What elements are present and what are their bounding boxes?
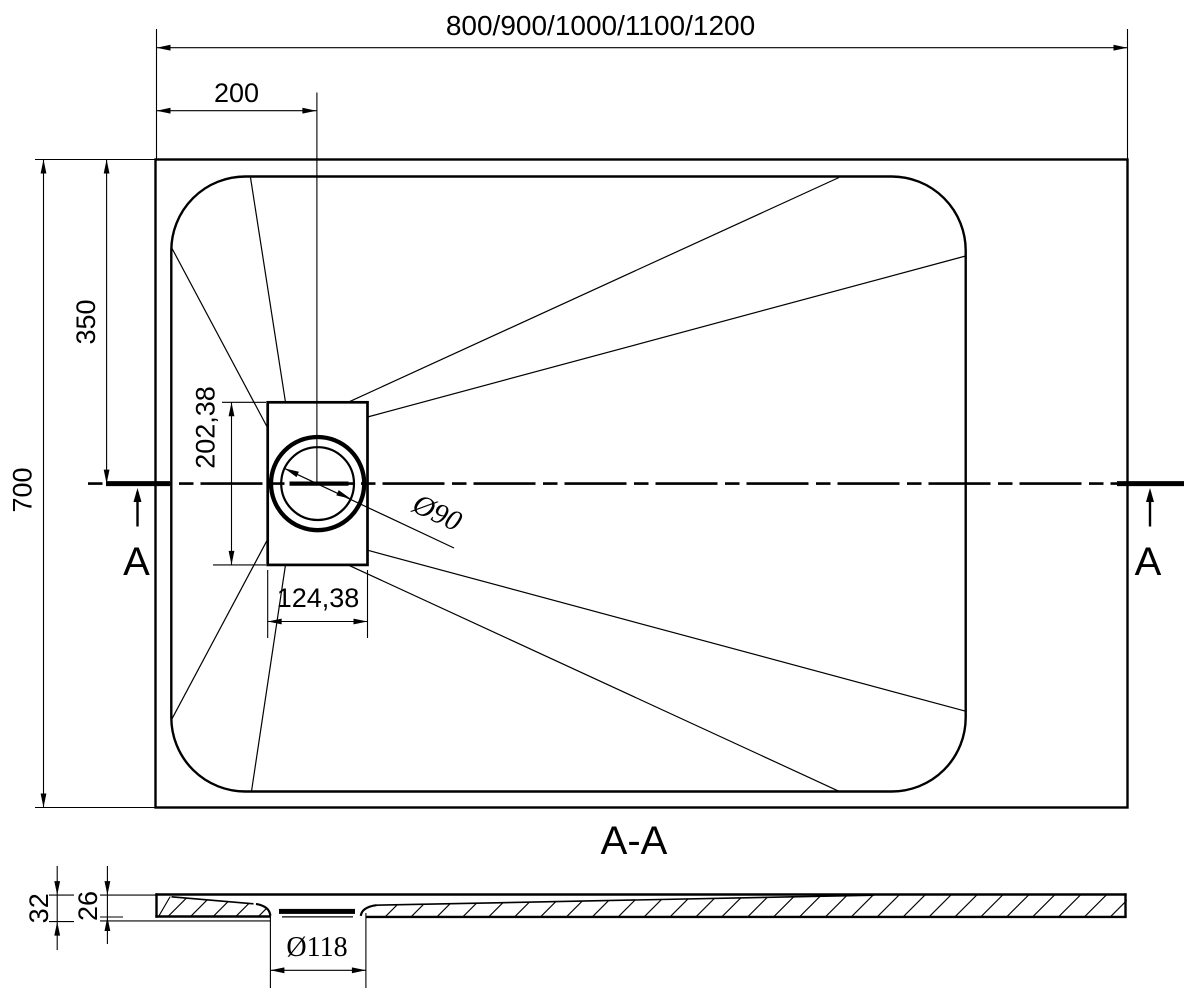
svg-text:200: 200 [214,78,259,108]
svg-text:202,38: 202,38 [191,386,221,469]
svg-text:32: 32 [24,893,54,923]
svg-text:700: 700 [8,467,38,512]
svg-text:124,38: 124,38 [277,583,360,613]
svg-text:26: 26 [73,891,103,921]
svg-text:A-A: A-A [601,819,668,863]
svg-text:350: 350 [71,299,101,344]
svg-text:800/900/1000/1100/1200: 800/900/1000/1100/1200 [446,10,755,41]
svg-text:A: A [123,540,150,584]
svg-text:A: A [1135,540,1162,584]
svg-text:Ø118: Ø118 [286,932,347,963]
